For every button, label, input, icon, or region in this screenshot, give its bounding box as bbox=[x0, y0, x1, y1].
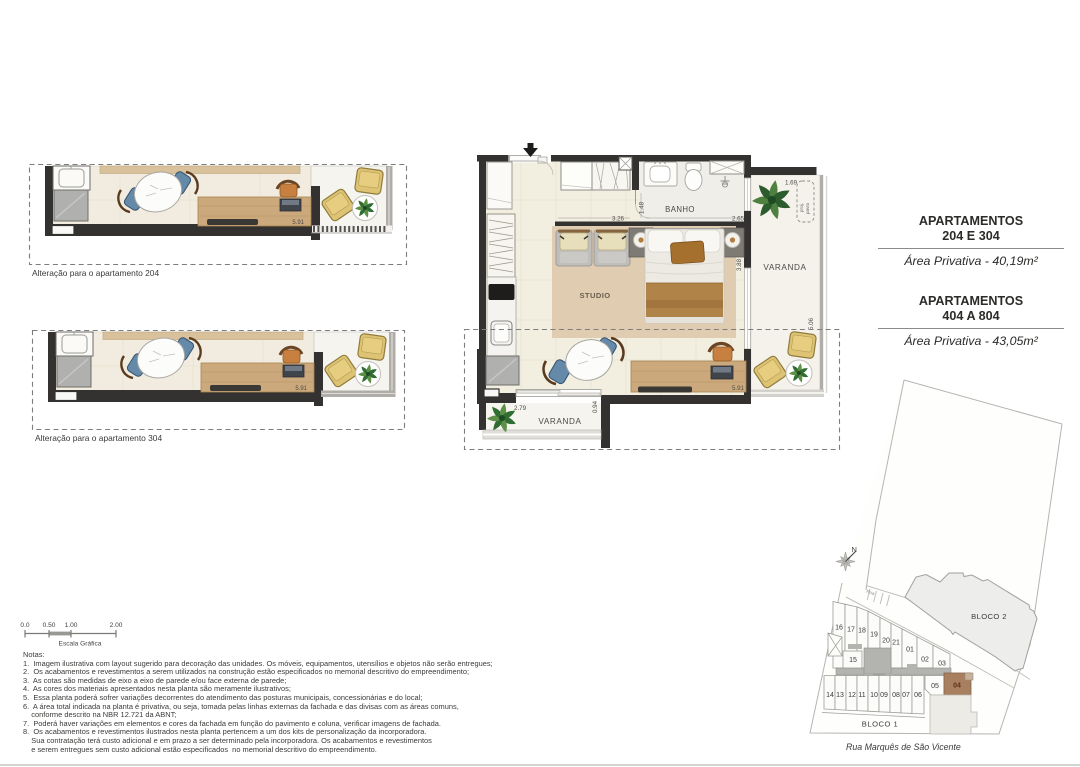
svg-text:03: 03 bbox=[938, 661, 946, 668]
svg-text:3.26: 3.26 bbox=[612, 216, 625, 223]
svg-text:14: 14 bbox=[826, 692, 834, 699]
svg-text:20: 20 bbox=[882, 638, 890, 645]
svg-text:21: 21 bbox=[892, 640, 900, 647]
svg-text:Escala Gráfica: Escala Gráfica bbox=[59, 641, 102, 648]
svg-text:5.06: 5.06 bbox=[808, 317, 815, 330]
svg-text:STUDIO: STUDIO bbox=[579, 291, 610, 300]
svg-text:18: 18 bbox=[858, 628, 866, 635]
svg-text:19: 19 bbox=[870, 632, 878, 639]
svg-text:BLOCO 1: BLOCO 1 bbox=[862, 720, 898, 729]
svg-text:06: 06 bbox=[914, 692, 922, 699]
svg-text:5.91: 5.91 bbox=[732, 385, 745, 392]
svg-text:N: N bbox=[852, 545, 857, 554]
svg-text:13: 13 bbox=[836, 692, 844, 699]
svg-text:VARANDA: VARANDA bbox=[538, 417, 581, 426]
svg-text:07: 07 bbox=[902, 692, 910, 699]
svg-text:01: 01 bbox=[906, 647, 914, 654]
svg-text:1.69: 1.69 bbox=[785, 180, 798, 187]
svg-text:11: 11 bbox=[858, 692, 865, 699]
svg-text:5.91: 5.91 bbox=[292, 220, 304, 226]
svg-text:16: 16 bbox=[835, 625, 843, 632]
svg-text:BANHO: BANHO bbox=[665, 205, 695, 214]
svg-text:12: 12 bbox=[848, 692, 856, 699]
svg-text:09: 09 bbox=[880, 692, 888, 699]
svg-text:2.65: 2.65 bbox=[732, 216, 745, 223]
svg-text:proj.: proj. bbox=[799, 203, 804, 212]
svg-text:05: 05 bbox=[931, 683, 939, 690]
svg-text:0.94: 0.94 bbox=[592, 400, 599, 413]
svg-text:1.48: 1.48 bbox=[639, 201, 646, 214]
svg-text:2.00: 2.00 bbox=[110, 622, 123, 629]
svg-text:BLOCO 2: BLOCO 2 bbox=[971, 612, 1007, 621]
svg-text:2.79: 2.79 bbox=[514, 405, 527, 412]
svg-text:10: 10 bbox=[870, 692, 878, 699]
svg-text:17: 17 bbox=[847, 627, 855, 634]
svg-text:08: 08 bbox=[892, 692, 900, 699]
svg-text:VARANDA: VARANDA bbox=[763, 263, 806, 272]
svg-text:pavto: pavto bbox=[805, 202, 810, 214]
svg-text:0.50: 0.50 bbox=[43, 622, 56, 629]
svg-text:1.00: 1.00 bbox=[65, 622, 78, 629]
svg-text:02: 02 bbox=[921, 657, 929, 664]
svg-text:15: 15 bbox=[849, 657, 857, 664]
svg-text:5.91: 5.91 bbox=[295, 386, 307, 392]
svg-text:3.88: 3.88 bbox=[736, 258, 743, 271]
svg-text:04: 04 bbox=[953, 683, 961, 690]
svg-text:0.0: 0.0 bbox=[20, 622, 29, 629]
